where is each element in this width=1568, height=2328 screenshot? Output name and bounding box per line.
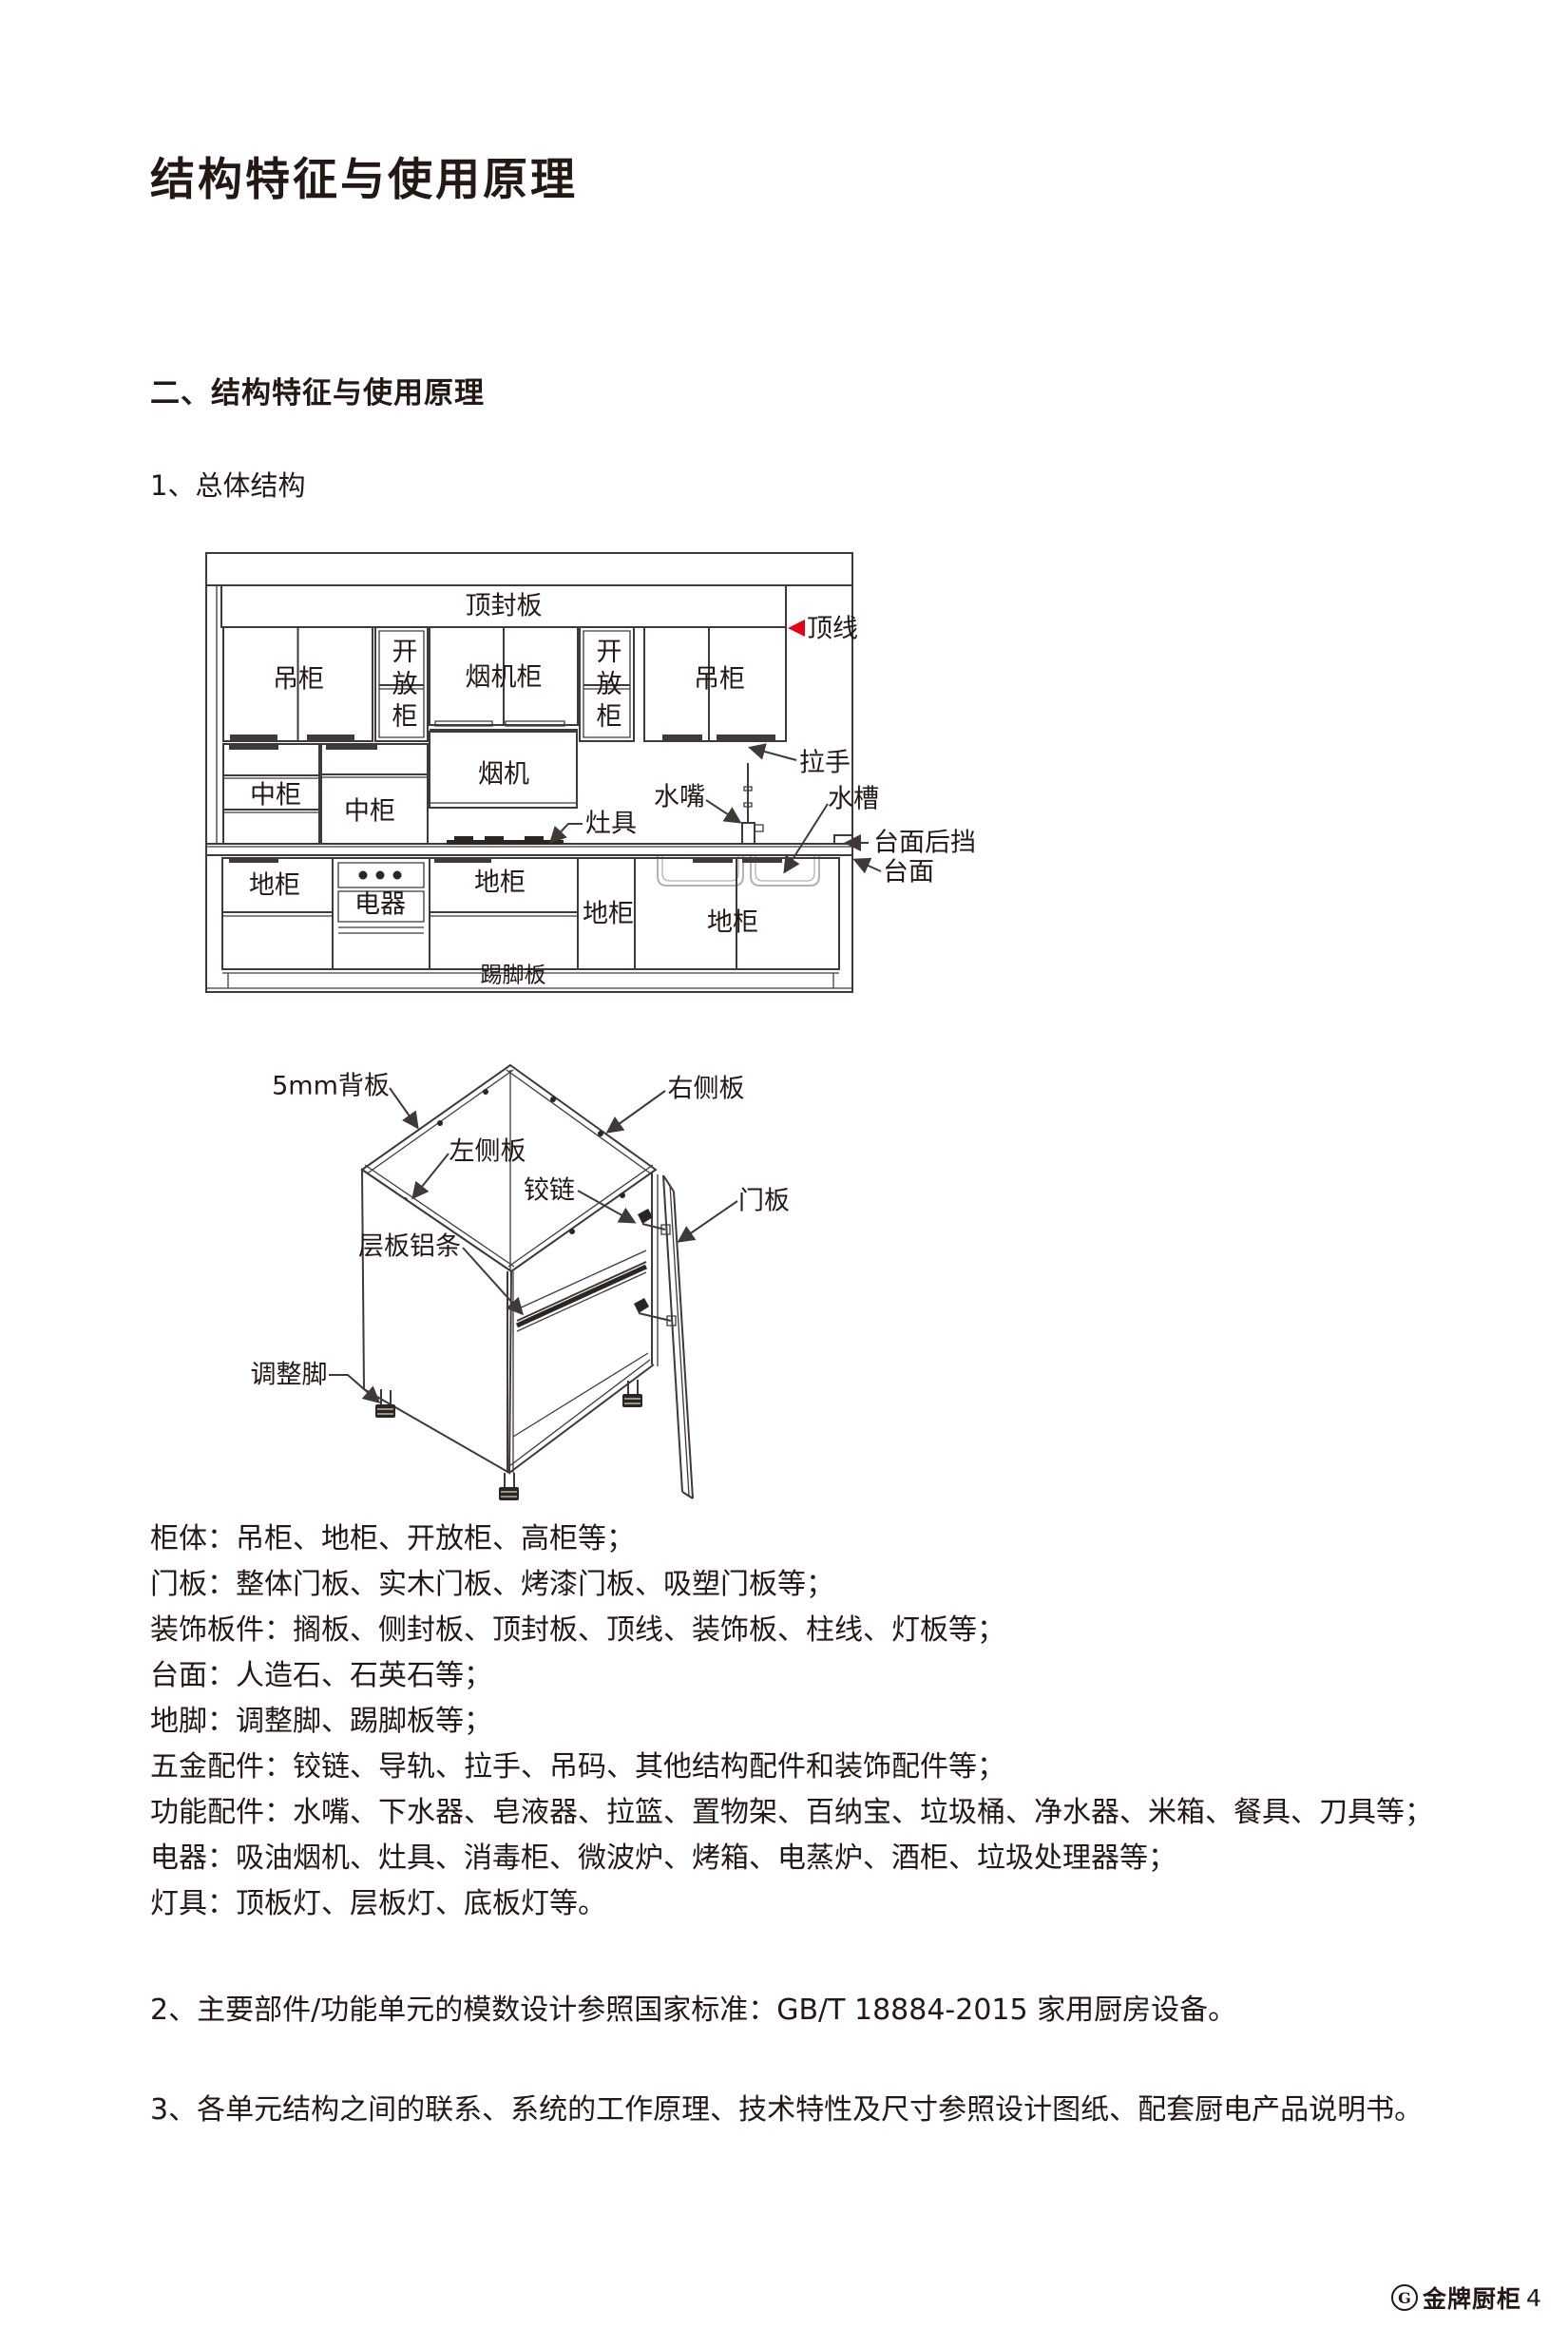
shelf xyxy=(517,1250,646,1331)
label-countertop: 台面 xyxy=(883,860,934,886)
component-line-hardware: 五金配件：铰链、导轨、拉手、吊码、其他结构配件和装饰配件等； xyxy=(150,1745,1433,1790)
door-panel-drawing xyxy=(663,1175,693,1498)
back-panel-leader xyxy=(390,1088,417,1127)
label-hinge: 铰链 xyxy=(524,1178,575,1204)
label-open-cabinet-left: 开放柜 xyxy=(390,638,415,735)
label-wall-cabinet-right: 吊柜 xyxy=(694,667,745,693)
faucet-drawing xyxy=(742,763,763,844)
label-stove: 灶具 xyxy=(585,811,637,837)
label-wall-cabinet-left: 吊柜 xyxy=(273,667,324,693)
page-footer: G 金牌厨柜 4 xyxy=(1391,2280,1541,2315)
hinge-bottom xyxy=(634,1298,676,1326)
page-number: 4 xyxy=(1526,2284,1541,2312)
label-left-side-panel: 左侧板 xyxy=(449,1139,526,1165)
door-leader xyxy=(679,1201,737,1241)
cooktop xyxy=(447,836,564,845)
label-base-cabinet-4: 地柜 xyxy=(707,910,758,936)
label-crown-line: 顶线 xyxy=(807,617,858,642)
handle-leader xyxy=(751,748,796,760)
manual-page: 结构特征与使用原理 二、结构特征与使用原理 1、总体结构 xyxy=(0,0,1568,2328)
label-sink: 水槽 xyxy=(828,787,879,812)
label-base-cabinet-2: 地柜 xyxy=(474,870,526,896)
label-open-cabinet-right: 开放柜 xyxy=(594,638,620,735)
component-line-lighting: 灯具：顶板灯、层板灯、底板灯等。 xyxy=(150,1881,1433,1927)
component-line-appliances: 电器：吸油烟机、灶具、消毒柜、微波炉、烤箱、电蒸炉、酒柜、垃圾处理器等； xyxy=(150,1836,1433,1881)
sink-leader xyxy=(785,804,828,871)
note-reference: 3、各单元结构之间的联系、系统的工作原理、技术特性及尺寸参照设计图纸、配套厨电产… xyxy=(150,2086,1423,2128)
section-heading: 二、结构特征与使用原理 xyxy=(150,369,485,411)
component-line-countertop: 台面：人造石、石英石等； xyxy=(150,1653,1433,1699)
label-handle: 拉手 xyxy=(799,751,851,776)
mid-cabinet-2 xyxy=(321,744,428,844)
label-appliance: 电器 xyxy=(354,892,406,918)
page-title: 结构特征与使用原理 xyxy=(150,143,578,208)
brand-logo-icon: G xyxy=(1391,2284,1418,2311)
label-hood-cabinet: 烟机柜 xyxy=(466,665,543,691)
component-line-functional: 功能配件：水嘴、下水器、皂液器、拉篮、置物架、百纳宝、垃圾桶、净水器、米箱、餐具… xyxy=(150,1790,1433,1836)
label-top-seal-board: 顶封板 xyxy=(466,594,543,620)
label-adjustable-foot: 调整脚 xyxy=(251,1363,328,1388)
component-list: 柜体：吊柜、地柜、开放柜、高柜等； 门板：整体门板、实木门板、烤漆门板、吸塑门板… xyxy=(150,1517,1433,1927)
label-base-cabinet-3: 地柜 xyxy=(583,902,634,927)
label-door-panel: 门板 xyxy=(738,1189,790,1214)
label-mid-cabinet-1: 中柜 xyxy=(250,783,301,809)
overall-structure-diagram xyxy=(200,546,998,1002)
component-line-feet: 地脚：调整脚、踢脚板等； xyxy=(150,1699,1433,1745)
base-unit-diagram xyxy=(219,1045,751,1520)
label-hood: 烟机 xyxy=(478,762,529,788)
component-line-door-panel: 门板：整体门板、实木门板、烤漆门板、吸塑门板等； xyxy=(150,1562,1433,1608)
faucet-leader xyxy=(706,800,739,822)
sink-drawing xyxy=(658,856,819,886)
brand-name: 金牌厨柜 xyxy=(1423,2280,1521,2315)
stove-leader xyxy=(551,824,583,842)
subsection-heading: 1、总体结构 xyxy=(150,464,305,504)
label-back-panel: 5mm背板 xyxy=(272,1074,390,1099)
component-line-cabinet-body: 柜体：吊柜、地柜、开放柜、高柜等； xyxy=(150,1517,1433,1562)
countertop-leader xyxy=(855,860,881,871)
label-shelf-strip: 层板铝条 xyxy=(358,1234,461,1260)
label-kick-board: 踢脚板 xyxy=(481,965,546,987)
label-base-cabinet-1: 地柜 xyxy=(249,873,300,899)
label-faucet: 水嘴 xyxy=(654,785,705,811)
label-countertop-backsplash: 台面后挡 xyxy=(873,830,976,856)
label-mid-cabinet-2: 中柜 xyxy=(344,799,395,825)
component-line-decor-panels: 装饰板件：搁板、侧封板、顶封板、顶线、装饰板、柱线、灯板等； xyxy=(150,1608,1433,1653)
note-standard: 2、主要部件/功能单元的模数设计参照国家标准：GB/T 18884-2015 家… xyxy=(150,1986,1236,2028)
right-panel-leader xyxy=(608,1091,665,1132)
label-right-side-panel: 右侧板 xyxy=(668,1077,745,1102)
